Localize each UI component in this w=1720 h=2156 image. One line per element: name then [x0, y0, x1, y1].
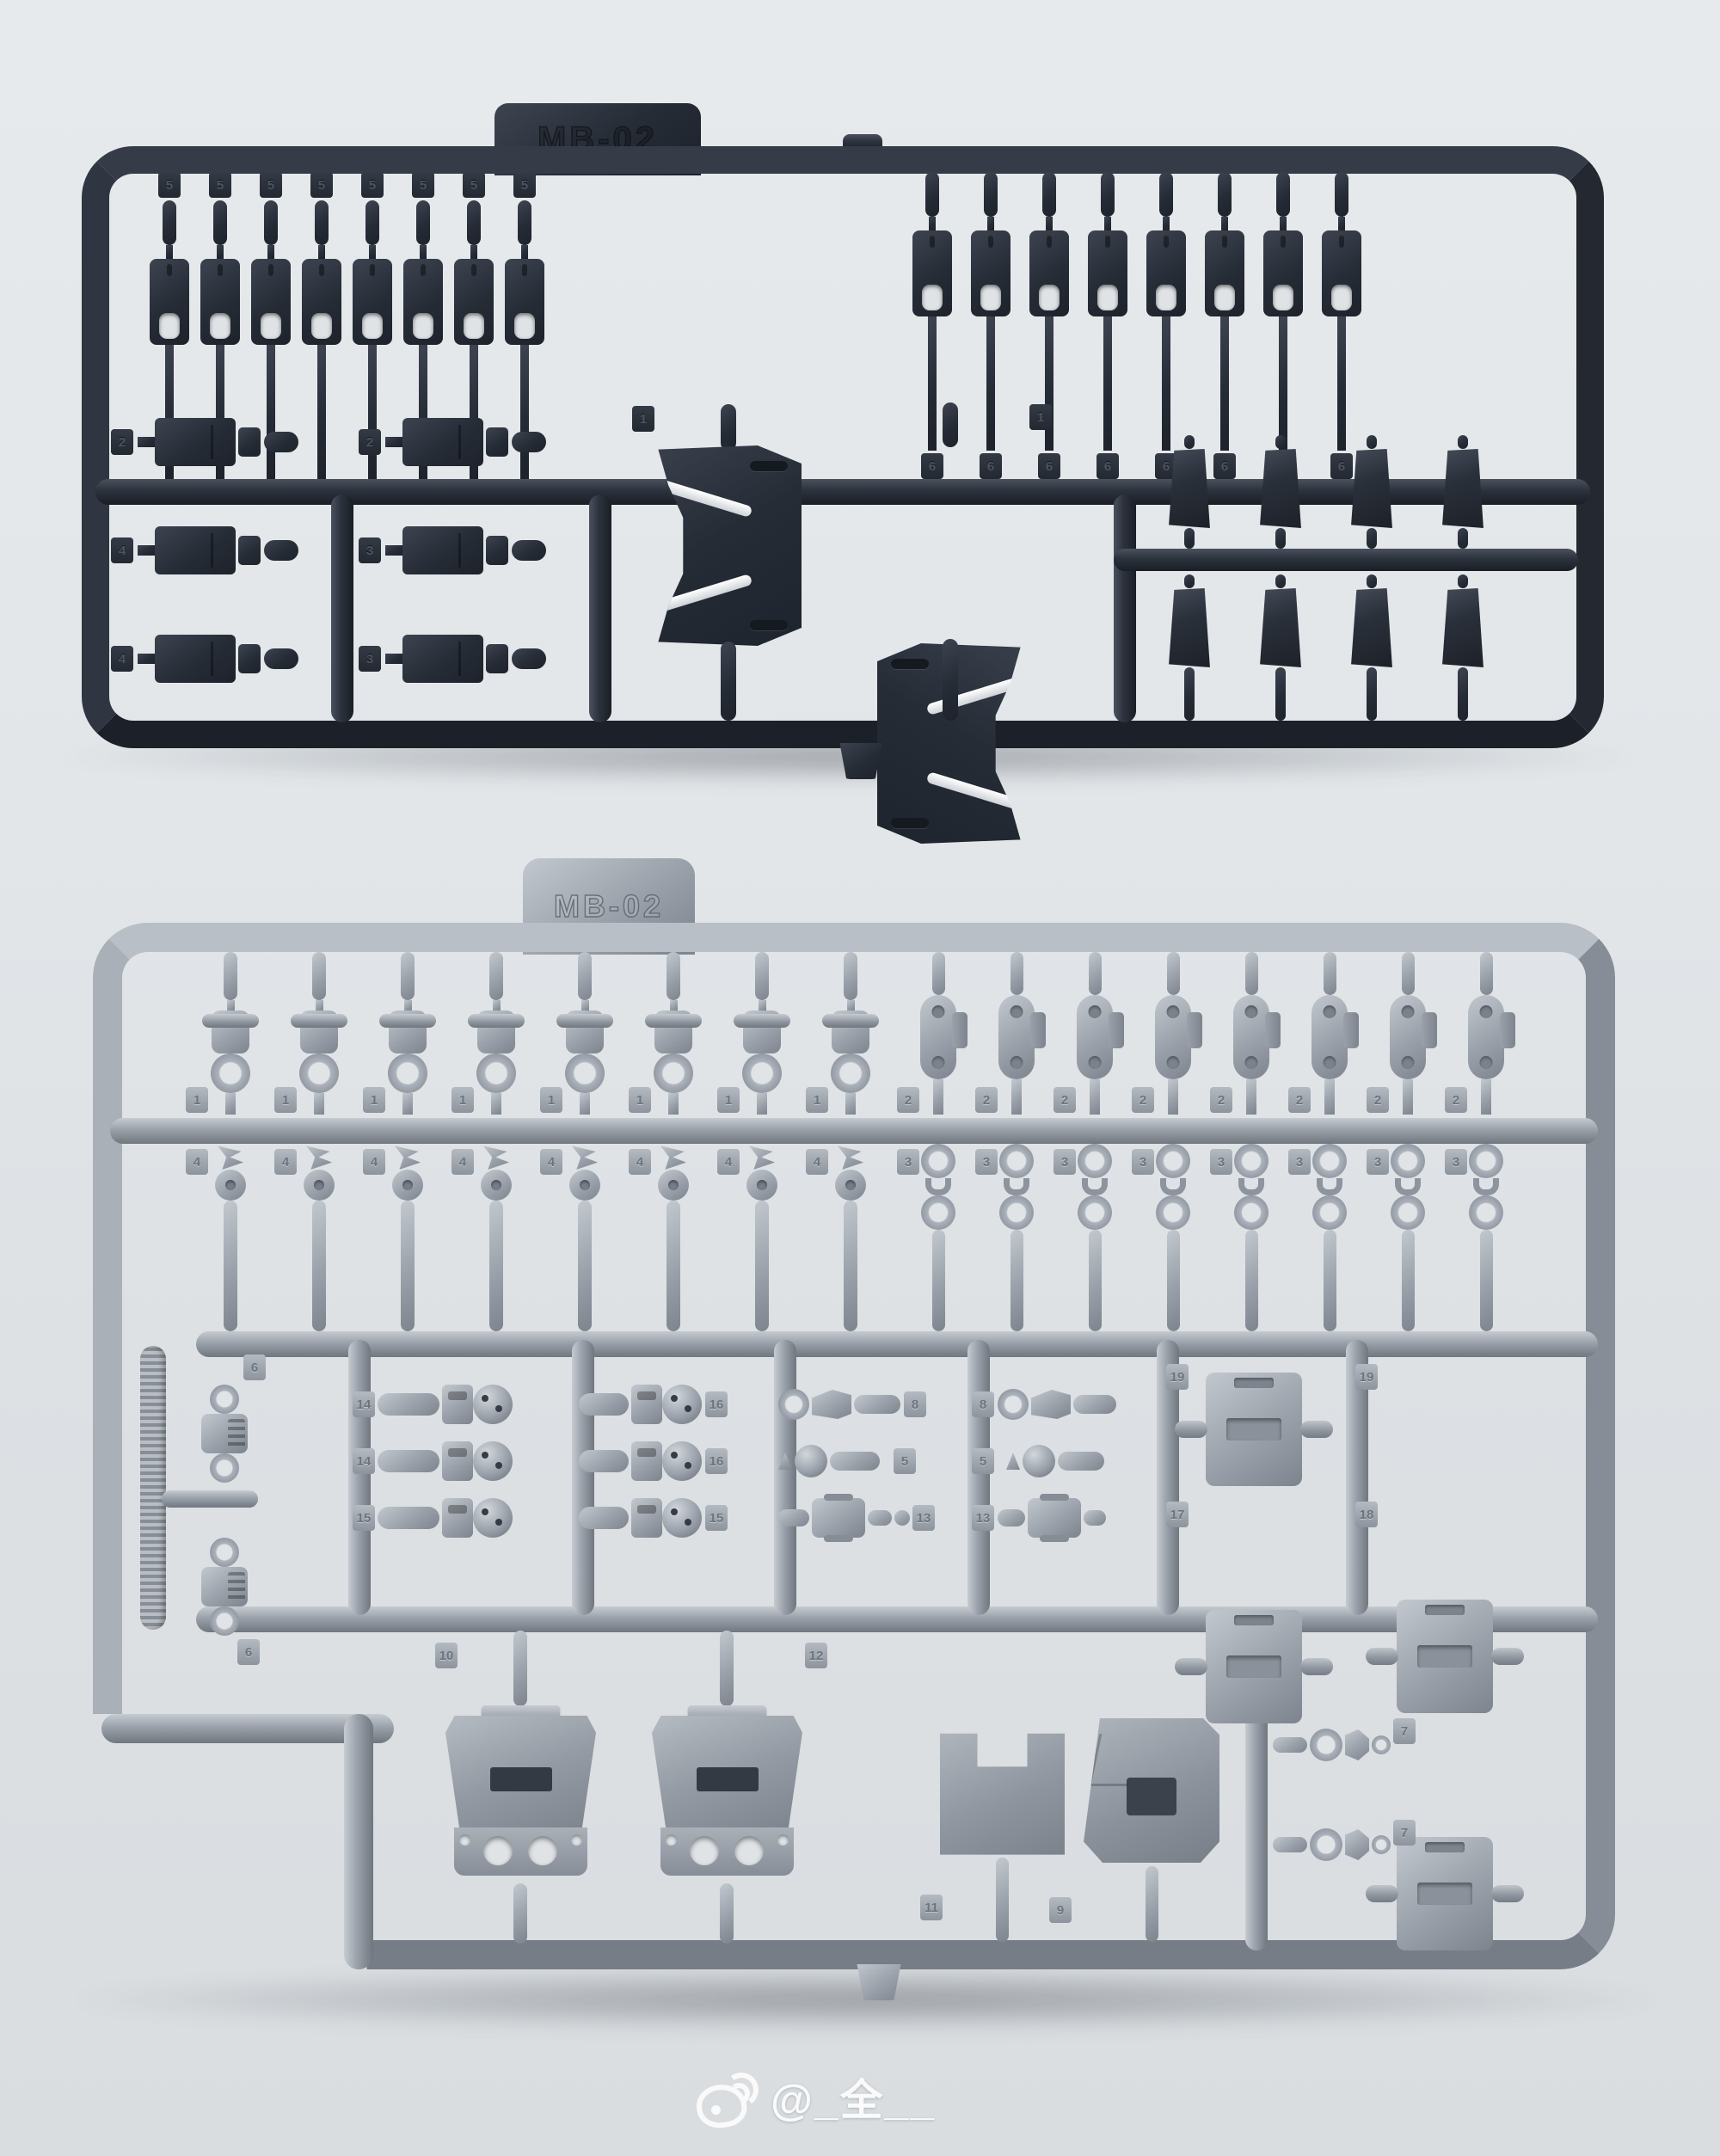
clamp-shape [631, 1498, 662, 1538]
neck-shape [1046, 217, 1053, 230]
eyelet-ring-shape [210, 1538, 239, 1567]
light-box-part [1206, 1373, 1302, 1486]
plate-shape [1311, 995, 1348, 1079]
capsule-shape [264, 540, 298, 561]
dark-connector-part: 6 [1029, 172, 1070, 479]
flange-shape [1343, 1012, 1359, 1048]
part-number-tag: 1 [632, 406, 654, 432]
part-number-tag: 1 [363, 1087, 385, 1113]
hinge-shape [300, 1010, 338, 1053]
flange-shape [1109, 1012, 1124, 1048]
ball-joint-shape [662, 1441, 702, 1481]
plate-shape [920, 995, 956, 1079]
dark-sprue-divider-3 [1114, 494, 1136, 722]
pin-shape [1167, 952, 1180, 995]
part-number-tag: 1 [274, 1087, 297, 1113]
pin-shape [1089, 1230, 1102, 1331]
buckle-shape [302, 259, 341, 345]
part-number-tag: 2 [1210, 1087, 1232, 1113]
part-number-tag: 7 [1393, 1718, 1416, 1744]
ball-joint-shape [795, 1445, 827, 1477]
eyelet-ring-shape [1234, 1195, 1268, 1230]
pin-shape [925, 172, 939, 217]
connector-shape [238, 644, 261, 673]
part-number-tag: 5 [463, 172, 485, 198]
eyelet-ring-shape [1156, 1195, 1190, 1230]
dark-block-part: 4 [111, 525, 331, 575]
stem-shape [1337, 316, 1346, 451]
eyelet-ring-shape [998, 1389, 1029, 1420]
pin-shape [1402, 952, 1415, 995]
pin-shape [666, 952, 680, 1000]
cylinder-shape [1273, 1837, 1307, 1852]
block-shape [155, 526, 236, 574]
wedge-shape [1440, 588, 1485, 667]
flange-shape [1030, 1012, 1046, 1048]
small-hole [459, 1834, 470, 1846]
buckle-shape [1146, 230, 1186, 316]
side-connector-rail [162, 1490, 258, 1508]
part-number-tag: 10 [435, 1643, 458, 1668]
neck-shape [847, 1000, 855, 1010]
pin-shape [932, 952, 945, 995]
part-number-tag: 7 [1393, 1820, 1416, 1846]
clamp-shape [442, 1441, 473, 1481]
part-number-tag: 4 [274, 1149, 297, 1175]
cylinder-shape [778, 1509, 809, 1526]
pin-shape [489, 1201, 503, 1331]
buckle-shape [1205, 230, 1244, 316]
part-number-tag: 2 [975, 1087, 998, 1113]
hanger-pin [513, 1883, 527, 1944]
part-number-tag: 16 [705, 1391, 728, 1417]
hinge-shape [389, 1010, 427, 1053]
pin-shape [312, 1201, 326, 1331]
u-clip-shape [1238, 1178, 1264, 1195]
part-number-tag: 3 [1445, 1149, 1467, 1175]
pin-shape [401, 1201, 415, 1331]
buckle-shape [1322, 230, 1361, 316]
dark-wedge-row-1 [1167, 435, 1485, 549]
wedge-shape [1349, 588, 1394, 667]
dark-block-part: 3 [359, 525, 577, 575]
neck-shape [267, 245, 274, 259]
side-pin [1491, 1885, 1524, 1902]
part-number-tag: 3 [1367, 1149, 1389, 1175]
stem-shape [385, 654, 402, 664]
neck-shape [521, 245, 528, 259]
capsule-shape [264, 648, 298, 669]
stem-shape [1103, 316, 1112, 451]
light-link-part [1456, 952, 1516, 1331]
grid-section-c: 8 5 13 [778, 1376, 964, 1546]
part-number-tag: 1 [186, 1087, 208, 1113]
part-number-tag: 17 [1166, 1502, 1189, 1527]
eyelet-ring-shape [1391, 1195, 1425, 1230]
stem-shape [385, 545, 402, 556]
dark-wedge-row-2 [1167, 574, 1485, 721]
pupil-shape [711, 2105, 721, 2115]
light-link-part [1065, 952, 1125, 1331]
light-link-part [1378, 952, 1438, 1331]
light-sprue-gate-nub-bottom [854, 1964, 904, 2000]
part-number-tag: 2 [1445, 1087, 1467, 1113]
part-number-tag: 3 [1288, 1149, 1311, 1175]
backpack-part [445, 1705, 596, 1882]
u-clip-shape [1082, 1178, 1108, 1195]
u-clip-shape [1004, 1178, 1029, 1195]
dark-connector-part: 6 [1321, 172, 1362, 479]
pin-shape [666, 1201, 680, 1331]
notch-detail [1425, 1842, 1465, 1852]
round-hole [690, 1836, 719, 1865]
pin-shape [315, 200, 329, 245]
hanger-pin [513, 1631, 527, 1706]
part-number-tag: 5 [310, 172, 333, 198]
ball-joint-shape [473, 1441, 513, 1481]
pin-shape [1167, 1230, 1180, 1331]
hinge-shape [212, 1010, 249, 1053]
pin-shape [163, 200, 176, 245]
neck-shape [493, 1000, 501, 1010]
pin-shape [1367, 528, 1377, 549]
ball-joint-part: 14 [353, 1376, 569, 1433]
part-number-tag: 1 [717, 1087, 740, 1113]
pin-shape [1458, 528, 1468, 549]
capsule-shape [264, 432, 298, 452]
light-box-part [1397, 1837, 1493, 1950]
hinge-shape [477, 1010, 515, 1053]
dark-wedge-part [1440, 574, 1485, 721]
part-number-tag: 3 [359, 646, 381, 672]
cylinder-shape [1273, 1737, 1307, 1753]
neck-shape [227, 1000, 235, 1010]
slot-detail [697, 1767, 759, 1791]
part-number-tag: 2 [1288, 1087, 1311, 1113]
notch-detail [1425, 1605, 1465, 1615]
light-hinge-part [289, 952, 349, 1331]
tab-shape [1006, 1453, 1020, 1470]
neck-shape [316, 1000, 323, 1010]
plate-shape [1390, 995, 1426, 1079]
neck-shape [1221, 217, 1228, 230]
buckle-shape [454, 259, 494, 345]
dark-sprue-right-mid-rail [1114, 549, 1578, 571]
cylinder-shape [378, 1450, 439, 1472]
dark-block-part: 2 [111, 417, 331, 467]
flange-shape [1422, 1012, 1437, 1048]
dark-block-part: 4 [111, 634, 331, 684]
knuckle-shape [1345, 1829, 1369, 1860]
cylinder-shape [378, 1507, 439, 1529]
wedge-shape [1258, 449, 1303, 528]
buckle-shape [1029, 230, 1069, 316]
pin-shape [416, 200, 430, 245]
part-number-tag: 4 [629, 1149, 651, 1175]
block-shape [155, 635, 236, 683]
capsule-shape [512, 540, 546, 561]
armor-part [1084, 1718, 1219, 1869]
block-shape [812, 1498, 865, 1538]
stem-shape [986, 316, 995, 451]
slot-detail [891, 659, 929, 669]
cylinder-shape [1073, 1395, 1116, 1414]
light-sprue: MB-02 [93, 858, 1615, 2015]
plate-shape [1233, 995, 1269, 1079]
neck-shape [1338, 217, 1345, 230]
grid-section-b: 16 16 15 [576, 1376, 771, 1546]
connector-shape [238, 536, 261, 565]
pin-shape [1184, 667, 1195, 721]
eyelet-ring-shape [210, 1606, 239, 1636]
light-row1-upper-tags: 11111111 [186, 1087, 828, 1113]
pin-shape [1458, 574, 1468, 588]
wedge-shape [1349, 449, 1394, 528]
plate-shape [660, 1827, 794, 1876]
dark-sprue: MB-02 5 5 5 [82, 103, 1604, 783]
ball-joint-shape [1023, 1445, 1055, 1477]
ball-joint-part: 16 [576, 1376, 771, 1433]
part-number-tag: 13 [912, 1505, 935, 1531]
part-number-tag: 6 [243, 1354, 266, 1380]
stem-shape [138, 545, 155, 556]
light-hinge-part [200, 952, 261, 1331]
pin-shape [312, 952, 326, 1000]
clamp-shape [631, 1441, 662, 1481]
buckle-shape [251, 259, 291, 345]
connector-shape [486, 427, 508, 457]
pin-shape [1010, 952, 1023, 995]
box-bottom-pin [721, 642, 736, 721]
hook-shape [1031, 1390, 1071, 1419]
dark-wedge-part [1258, 435, 1303, 549]
block-shape [402, 526, 483, 574]
part-number-tag: 15 [705, 1505, 728, 1531]
notch-detail [1234, 1378, 1274, 1388]
wedge-shape [1440, 449, 1485, 528]
pin-shape [984, 172, 998, 217]
buckle-shape [150, 259, 189, 345]
capsule-shape [512, 648, 546, 669]
eyelet-ring-shape [1310, 1729, 1342, 1761]
pin-shape [1275, 667, 1286, 721]
part-number-tag: 4 [111, 537, 133, 563]
buckle-shape [353, 259, 392, 345]
tab-shape [778, 1453, 792, 1470]
dark-wedge-part [1167, 435, 1212, 549]
light-hinge-part [378, 952, 438, 1331]
slot-detail [490, 1767, 552, 1791]
light-hinge-part [555, 952, 615, 1331]
dark-wedge-part [1258, 574, 1303, 721]
pin-shape [1324, 1230, 1336, 1331]
pin-shape [1335, 172, 1348, 217]
pin-shape [578, 1201, 592, 1331]
part-number-tag: 19 [1166, 1364, 1189, 1390]
light-sprue-step-rail-vertical [344, 1714, 373, 1969]
part-number-tag: 6 [1096, 453, 1119, 479]
flange-shape [1500, 1012, 1515, 1048]
pin-shape [1218, 172, 1232, 217]
part-number-tag: 6 [1038, 453, 1060, 479]
part-number-tag: 5 [260, 172, 282, 198]
part-number-tag: 3 [975, 1149, 998, 1175]
pin-shape [844, 1201, 857, 1331]
stem-shape [845, 1093, 856, 1115]
knurled-side-rail [140, 1346, 166, 1630]
dark-sprue-divider-2 [589, 494, 611, 722]
pin-shape [1367, 435, 1377, 449]
pin-shape [932, 1230, 945, 1331]
eyelet-ring-shape [1372, 1735, 1391, 1754]
block-shape [155, 418, 236, 466]
part-number-tag: 8 [904, 1391, 926, 1417]
slot-detail [1417, 1883, 1472, 1905]
stem-shape [1045, 316, 1053, 451]
weibo-icon [697, 2073, 759, 2128]
ball-joint-shape [473, 1498, 513, 1538]
neck-shape [318, 245, 325, 259]
part-number-tag: 14 [353, 1391, 375, 1417]
dark-connector-part: 6 [970, 172, 1011, 479]
pin-shape [224, 1201, 237, 1331]
small-hole [777, 1834, 789, 1846]
cylinder-shape [830, 1452, 880, 1471]
side-pin [1175, 1421, 1207, 1438]
dark-connector-part: 6 [1262, 172, 1304, 479]
neck-shape [470, 245, 477, 259]
dark-wedge-part [1349, 574, 1394, 721]
stem-shape [385, 437, 402, 447]
light-link-part [986, 952, 1047, 1331]
part-number-tag: 6 [980, 453, 1002, 479]
light-hinge-part [820, 952, 881, 1331]
part-number-tag: 1 [1029, 404, 1052, 430]
part-number-tag: 14 [353, 1448, 375, 1474]
light-link-part [1143, 952, 1203, 1331]
part-number-tag: 16 [705, 1448, 728, 1474]
part-number-tag: 5 [361, 172, 384, 198]
wedge-shape [1258, 588, 1303, 667]
part-number-tag: 2 [359, 429, 381, 455]
backpack-part [652, 1705, 802, 1882]
dark-connector-part: 6 [1146, 172, 1187, 479]
capsule-shape [512, 432, 546, 452]
connector-shape [238, 427, 261, 457]
part-number-tag: 1 [451, 1087, 474, 1113]
u-clip-shape [925, 1178, 951, 1195]
dark-block-part: 2 [359, 417, 577, 467]
part-number-tag: 5 [513, 172, 536, 198]
light-sprue-code: MB-02 [554, 888, 664, 924]
neck-shape [759, 1000, 766, 1010]
dark-left-column-a: 2 4 4 [111, 417, 331, 684]
buckle-shape [1263, 230, 1303, 316]
cylinder-shape [854, 1395, 900, 1414]
dark-wedge-part [1167, 574, 1212, 721]
part-number-tag: 3 [897, 1149, 919, 1175]
eyelet-ring-shape [921, 1195, 955, 1230]
block-shape [1028, 1498, 1081, 1538]
head-shape [201, 1414, 248, 1453]
hanger-pin [720, 1883, 734, 1944]
part-number-tag: 18 [1355, 1502, 1378, 1527]
light-hinge-part [466, 952, 526, 1331]
neck-shape [1104, 217, 1111, 230]
pin-shape [518, 200, 531, 245]
stem-shape [138, 437, 155, 447]
side-pin [1491, 1648, 1524, 1665]
light-row2-upper-tags: 22222222 [897, 1087, 1467, 1113]
part-number-tag: 6 [237, 1639, 260, 1665]
chevron-shape [838, 1144, 863, 1170]
part-number-tag: 13 [972, 1505, 994, 1531]
pin-shape [755, 1201, 769, 1331]
eyelet-hook-part: 8 [972, 1376, 1152, 1433]
part-number-tag: 6 [921, 453, 943, 479]
part-number-tag: 12 [805, 1643, 827, 1668]
pin-shape [1245, 952, 1258, 995]
part-number-tag: 1 [629, 1087, 651, 1113]
light-row2-lower-tags: 33333333 [897, 1149, 1467, 1175]
ball-joint-shape [662, 1498, 702, 1538]
slot-detail [1127, 1778, 1176, 1815]
watermark: @_全__ [697, 2066, 936, 2128]
part-number-tag: 2 [1132, 1087, 1154, 1113]
pin-shape [1458, 667, 1468, 721]
part-number-tag: 1 [806, 1087, 828, 1113]
cylinder-shape [378, 1393, 439, 1416]
eyelet-ring-shape [1372, 1835, 1391, 1854]
part-number-tag: 15 [353, 1505, 375, 1531]
light-box-part [1397, 1600, 1493, 1713]
neck-shape [369, 245, 376, 259]
pin-shape [365, 200, 379, 245]
part-number-tag: 4 [111, 646, 133, 672]
light-row1-lower-tags: 44444444 [186, 1149, 828, 1175]
flange-shape [952, 1012, 967, 1048]
block-shape [402, 418, 483, 466]
pin-shape [489, 952, 503, 1000]
buckle-shape [912, 230, 952, 316]
u-clip-shape [1395, 1178, 1421, 1195]
ball-joint-part: 15 [353, 1490, 569, 1546]
part-number-tag: 5 [894, 1448, 916, 1474]
pin-shape [1402, 1230, 1415, 1331]
pin-shape [1276, 172, 1290, 217]
dark-top-row-right: 6 6 6 6 [912, 172, 1362, 479]
dark-connector-part: 6 [1204, 172, 1245, 479]
neck-shape [581, 1000, 589, 1010]
small-joint-part [1273, 1828, 1393, 1861]
part-number-tag: 9 [1049, 1897, 1072, 1923]
round-hole [483, 1836, 513, 1865]
eyelet-ring-shape [1310, 1828, 1342, 1861]
pin-shape [264, 200, 278, 245]
small-hole [571, 1834, 582, 1846]
light-head-part [194, 1538, 255, 1636]
part-number-tag: 4 [186, 1149, 208, 1175]
pin-shape [1159, 172, 1173, 217]
hinge-shape [566, 1010, 604, 1053]
white-slash-detail [926, 771, 1027, 812]
stem-shape [1481, 1079, 1491, 1115]
part-number-tag: 5 [412, 172, 434, 198]
u-clip-shape [1473, 1178, 1499, 1195]
hanger-pin [1146, 1866, 1158, 1942]
side-pin [1300, 1421, 1333, 1438]
pin-shape [1275, 574, 1286, 588]
